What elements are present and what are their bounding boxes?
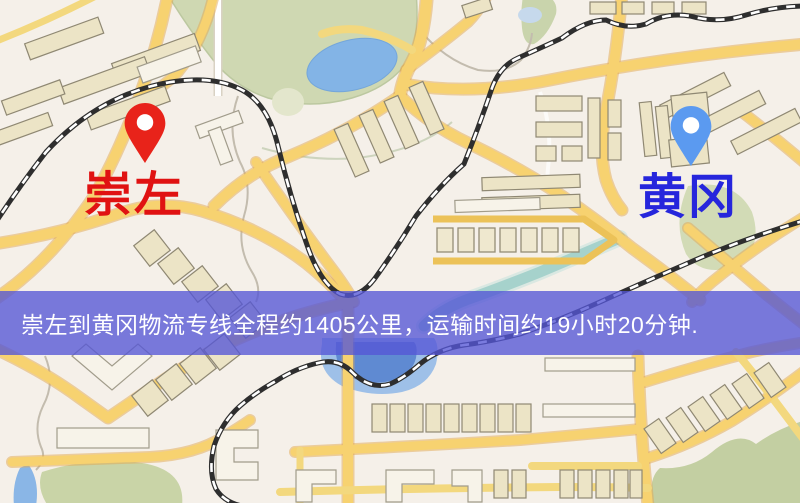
route-info-text: 崇左到黄冈物流专线全程约1405公里，运输时间约19小时20分钟. [0, 306, 698, 340]
destination-pin-icon [667, 104, 715, 168]
destination-city-label: 黄冈 [638, 174, 738, 222]
origin-city-label: 崇左 [84, 172, 184, 220]
route-info-banner: 崇左到黄冈物流专线全程约1405公里，运输时间约19小时20分钟. [0, 291, 800, 355]
map-artwork [0, 0, 800, 503]
logistics-route-map: 崇左 黄冈 崇左到黄冈物流专线全程约1405公里，运输时间约19小时20分钟. [0, 0, 800, 503]
origin-pin-icon [121, 101, 169, 165]
